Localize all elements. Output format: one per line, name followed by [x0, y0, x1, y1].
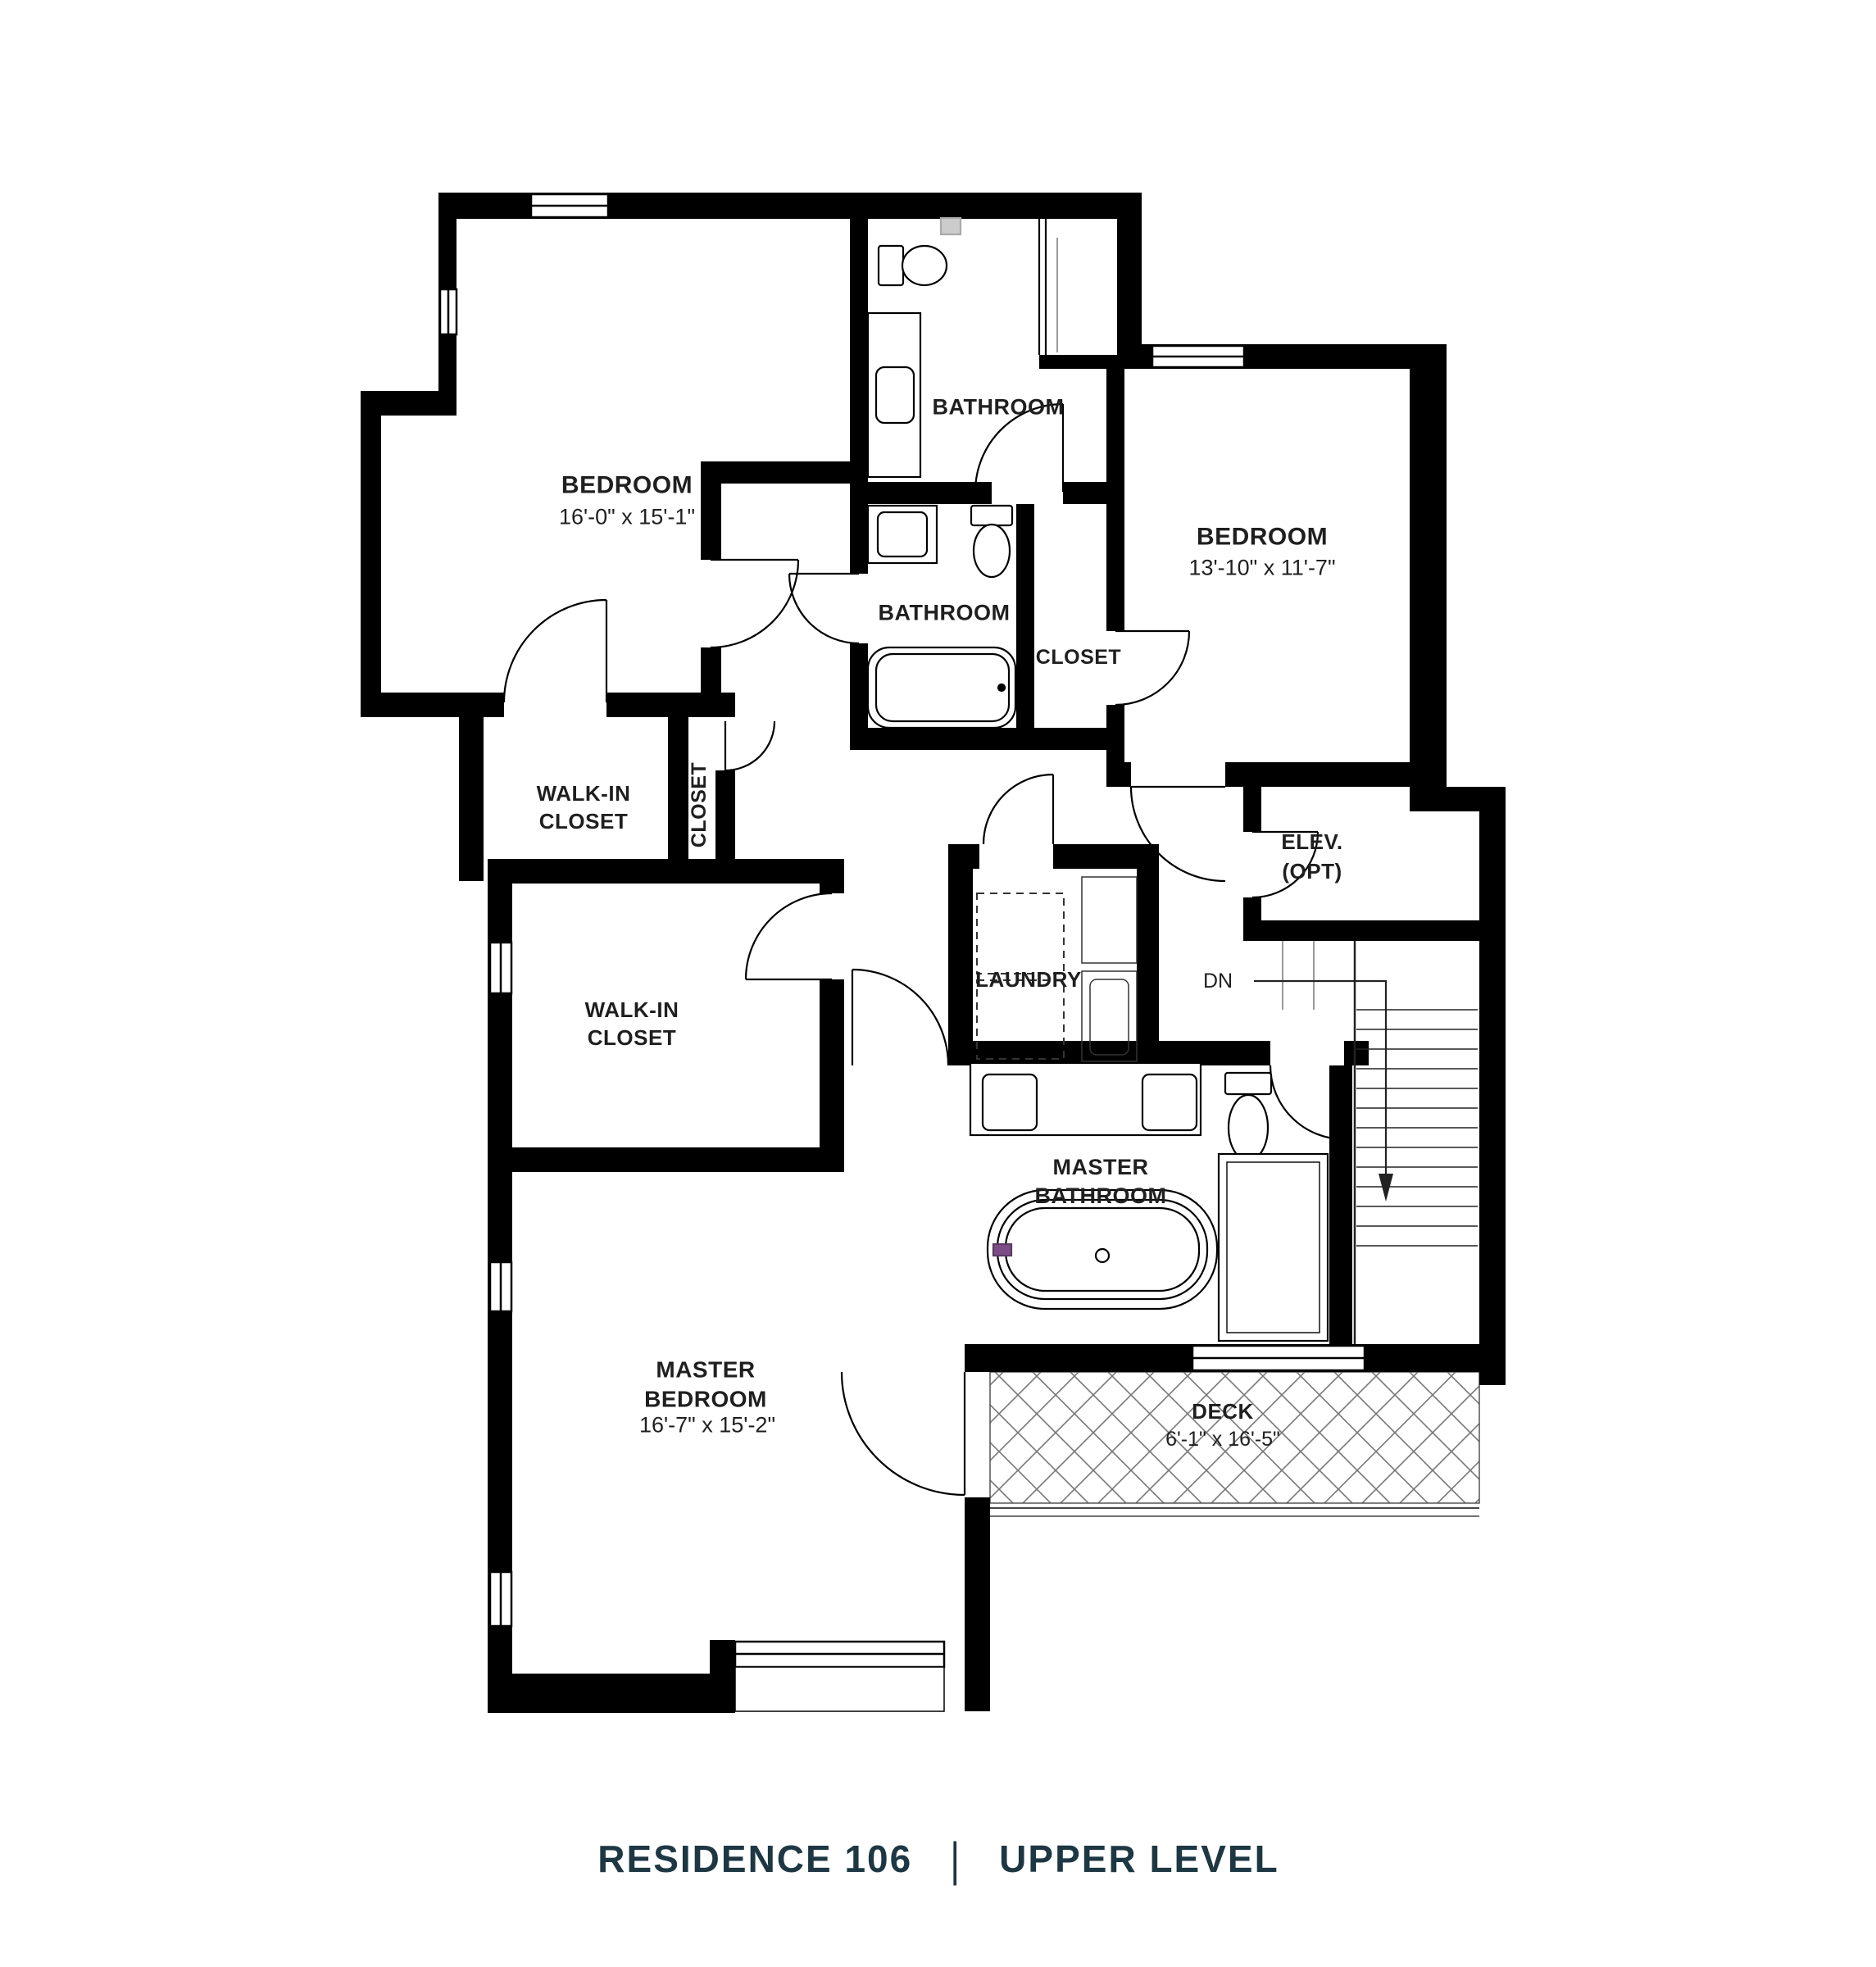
tub-faucet-icon — [993, 1244, 1011, 1256]
toilet-icon — [1225, 1073, 1271, 1094]
sink-icon — [878, 512, 927, 556]
floor-plan-page: BEDROOM 16'-0" x 15'-1" BATHROOM BEDROOM… — [0, 0, 1876, 1967]
room-label-closet-hall: CLOSET — [686, 762, 713, 847]
sink-icon — [1142, 1074, 1197, 1130]
room-dims-bedroom-right: 13'-10" x 11'-7" — [1188, 553, 1335, 582]
room-label-bedroom-top-left: BEDROOM — [561, 470, 693, 502]
sink-icon — [876, 367, 914, 423]
room-label-bathroom-middle: BATHROOM — [879, 598, 1011, 627]
sink-icon — [983, 1074, 1037, 1130]
title-level: UPPER LEVEL — [999, 1837, 1279, 1881]
room-label-deck: DECK — [1192, 1398, 1254, 1426]
room-dims-deck: 6'-1" x 16'-5" — [1165, 1426, 1280, 1453]
room-label-elevator: ELEV. — [1281, 829, 1342, 856]
room-label-closet-bedroom-right: CLOSET — [1036, 644, 1121, 671]
room-label-laundry: LAUNDRY — [975, 966, 1082, 994]
toilet-icon — [879, 246, 903, 285]
room-dims-bedroom-top-left: 16'-0" x 15'-1" — [559, 502, 695, 531]
room-dims-master-bedroom: 16'-7" x 15'-2" — [639, 1411, 775, 1439]
washer-icon — [977, 893, 1064, 974]
shower-head-icon — [941, 218, 961, 234]
room-label-bedroom-right: BEDROOM — [1197, 521, 1328, 553]
room-label-walk-in-closet-lower: WALK-IN CLOSET — [579, 997, 685, 1052]
floor-plan-drawing — [0, 0, 1876, 1967]
room-label-master-bedroom: MASTER BEDROOM — [628, 1356, 784, 1415]
cabinet-icon — [1082, 877, 1137, 963]
room-label-bathroom-top: BATHROOM — [933, 393, 1065, 421]
stairs-direction-label: DN — [1203, 968, 1233, 995]
title-residence: RESIDENCE 106 — [597, 1837, 912, 1881]
title-separator: | — [950, 1831, 961, 1887]
room-label-walk-in-closet-upper: WALK-IN CLOSET — [530, 780, 637, 836]
plan-title: RESIDENCE 106 | UPPER LEVEL — [597, 1837, 1279, 1881]
room-label-master-bathroom: MASTER BATHROOM — [1027, 1153, 1174, 1211]
room-label-elevator-option: (OPT) — [1282, 858, 1342, 886]
toilet-icon — [971, 506, 1012, 525]
